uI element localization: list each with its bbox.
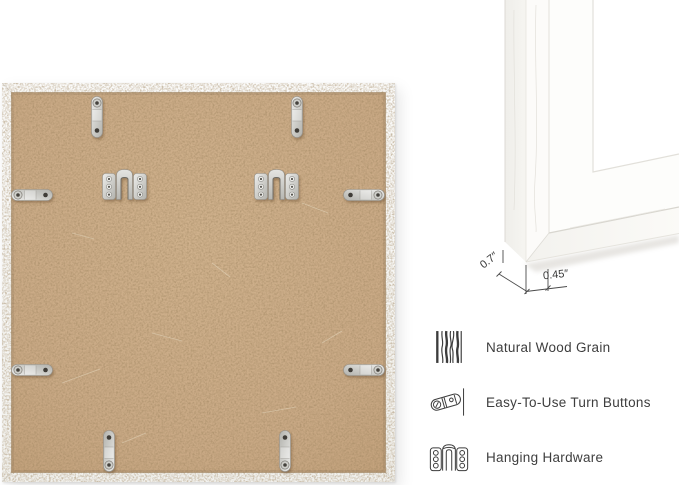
feature-legend: Natural Wood Grain Easy-To- xyxy=(429,327,674,485)
feature-item: Hanging Hardware xyxy=(429,437,674,477)
face-width-dimension-label: 0.45″ xyxy=(542,268,569,283)
turn-button-icon xyxy=(429,385,469,419)
mdf-backing-board xyxy=(12,93,386,473)
turn-button xyxy=(12,190,53,201)
turn-button xyxy=(104,431,115,472)
turn-button xyxy=(344,365,385,376)
frame-back-graphic xyxy=(2,83,395,482)
feature-item: Easy-To-Use Turn Buttons xyxy=(429,382,674,422)
turn-button xyxy=(92,97,103,138)
turn-button xyxy=(292,97,303,138)
feature-label: Hanging Hardware xyxy=(486,450,603,465)
product-image-canvas: 0.7″ 0.45″ Natural Wood Grain xyxy=(0,0,679,485)
frame-side-face xyxy=(505,0,526,262)
depth-dimension-label: 0.7″ xyxy=(478,250,501,271)
turn-button xyxy=(12,365,53,376)
turn-button xyxy=(280,431,291,472)
feature-label: Easy-To-Use Turn Buttons xyxy=(486,395,651,410)
frame-back-panel xyxy=(2,83,395,482)
mat-opening xyxy=(593,0,679,172)
wood-grain-icon xyxy=(429,330,469,364)
frame-front-face xyxy=(526,0,549,262)
hanging-hardware-icon xyxy=(429,439,469,475)
feature-label: Natural Wood Grain xyxy=(486,340,610,355)
frame-corner-detail: 0.7″ 0.45″ xyxy=(440,0,679,320)
feature-item: Natural Wood Grain xyxy=(429,327,674,367)
turn-button xyxy=(344,190,385,201)
